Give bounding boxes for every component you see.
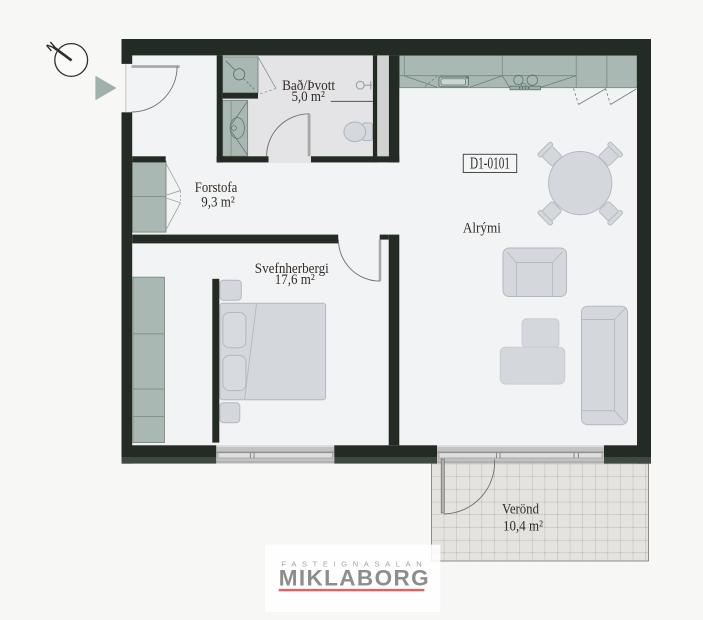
svg-text:5,0 m²: 5,0 m² xyxy=(291,89,325,105)
svg-text:10,4 m²: 10,4 m² xyxy=(503,518,543,534)
svg-text:Verönd: Verönd xyxy=(502,502,539,518)
svg-text:9,3 m²: 9,3 m² xyxy=(201,194,235,210)
svg-text:17,6 m²: 17,6 m² xyxy=(275,272,315,288)
svg-text:Alrými: Alrými xyxy=(463,221,501,237)
svg-text:D1-0101: D1-0101 xyxy=(470,154,510,173)
svg-text:MIKLABORG: MIKLABORG xyxy=(279,566,430,591)
